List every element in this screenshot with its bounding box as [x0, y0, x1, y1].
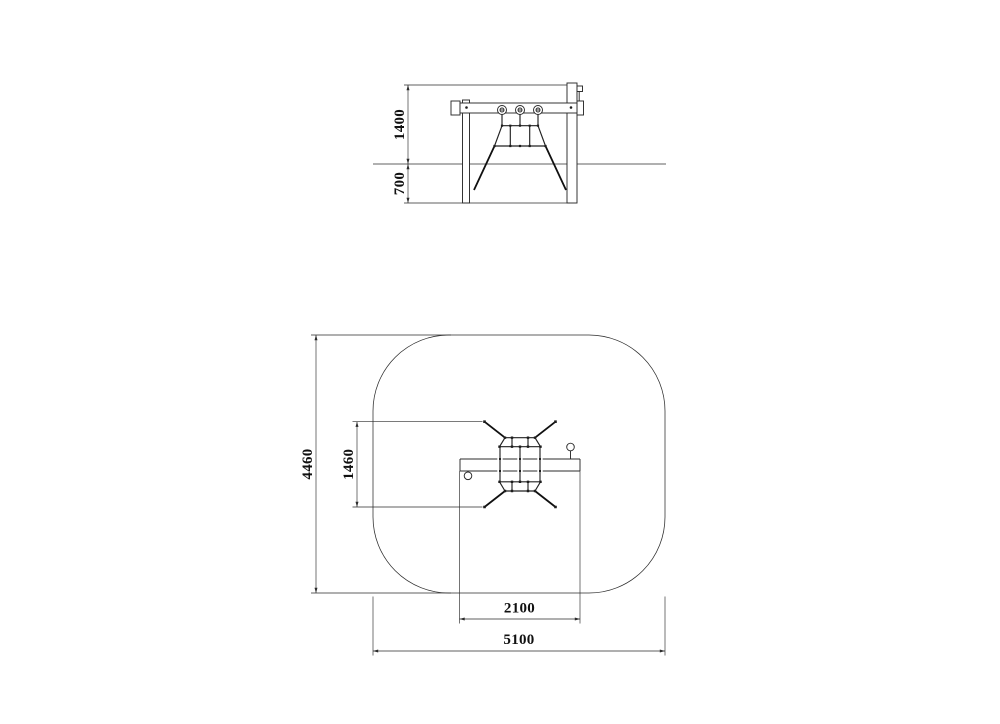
dim-label-height-1400: 1400 — [392, 109, 408, 140]
bolt-dot — [465, 106, 468, 109]
technical-drawing: 1400 700 4460 — [0, 0, 1000, 724]
bolt-dot — [570, 106, 573, 109]
swing-hangers — [498, 106, 543, 115]
dim-4460: 4460 — [300, 335, 451, 593]
plan-posts — [464, 443, 574, 479]
dim-2100: 2100 — [460, 471, 581, 624]
elevation-rope-net — [474, 115, 566, 191]
dim-label-zone-width-5100: 5100 — [503, 632, 534, 648]
elevation-view: 1400 700 — [373, 83, 666, 203]
post-circle-right — [567, 443, 575, 451]
anchor-ropes — [474, 146, 566, 190]
dim-1460: 1460 — [341, 422, 483, 507]
plan-rope-net — [483, 420, 557, 508]
drawing-sheet: 1400 700 4460 — [0, 0, 1000, 724]
safety-zone-outline — [373, 335, 665, 593]
dim-label-zone-depth-4460: 4460 — [300, 448, 316, 479]
dim-label-beam-2100: 2100 — [504, 601, 535, 617]
dim-label-net-span-1460: 1460 — [341, 449, 357, 480]
dim-label-foundation-700: 700 — [392, 172, 408, 195]
plan-view: 4460 1460 2100 5100 — [300, 335, 665, 656]
post-circle-left — [464, 472, 472, 480]
